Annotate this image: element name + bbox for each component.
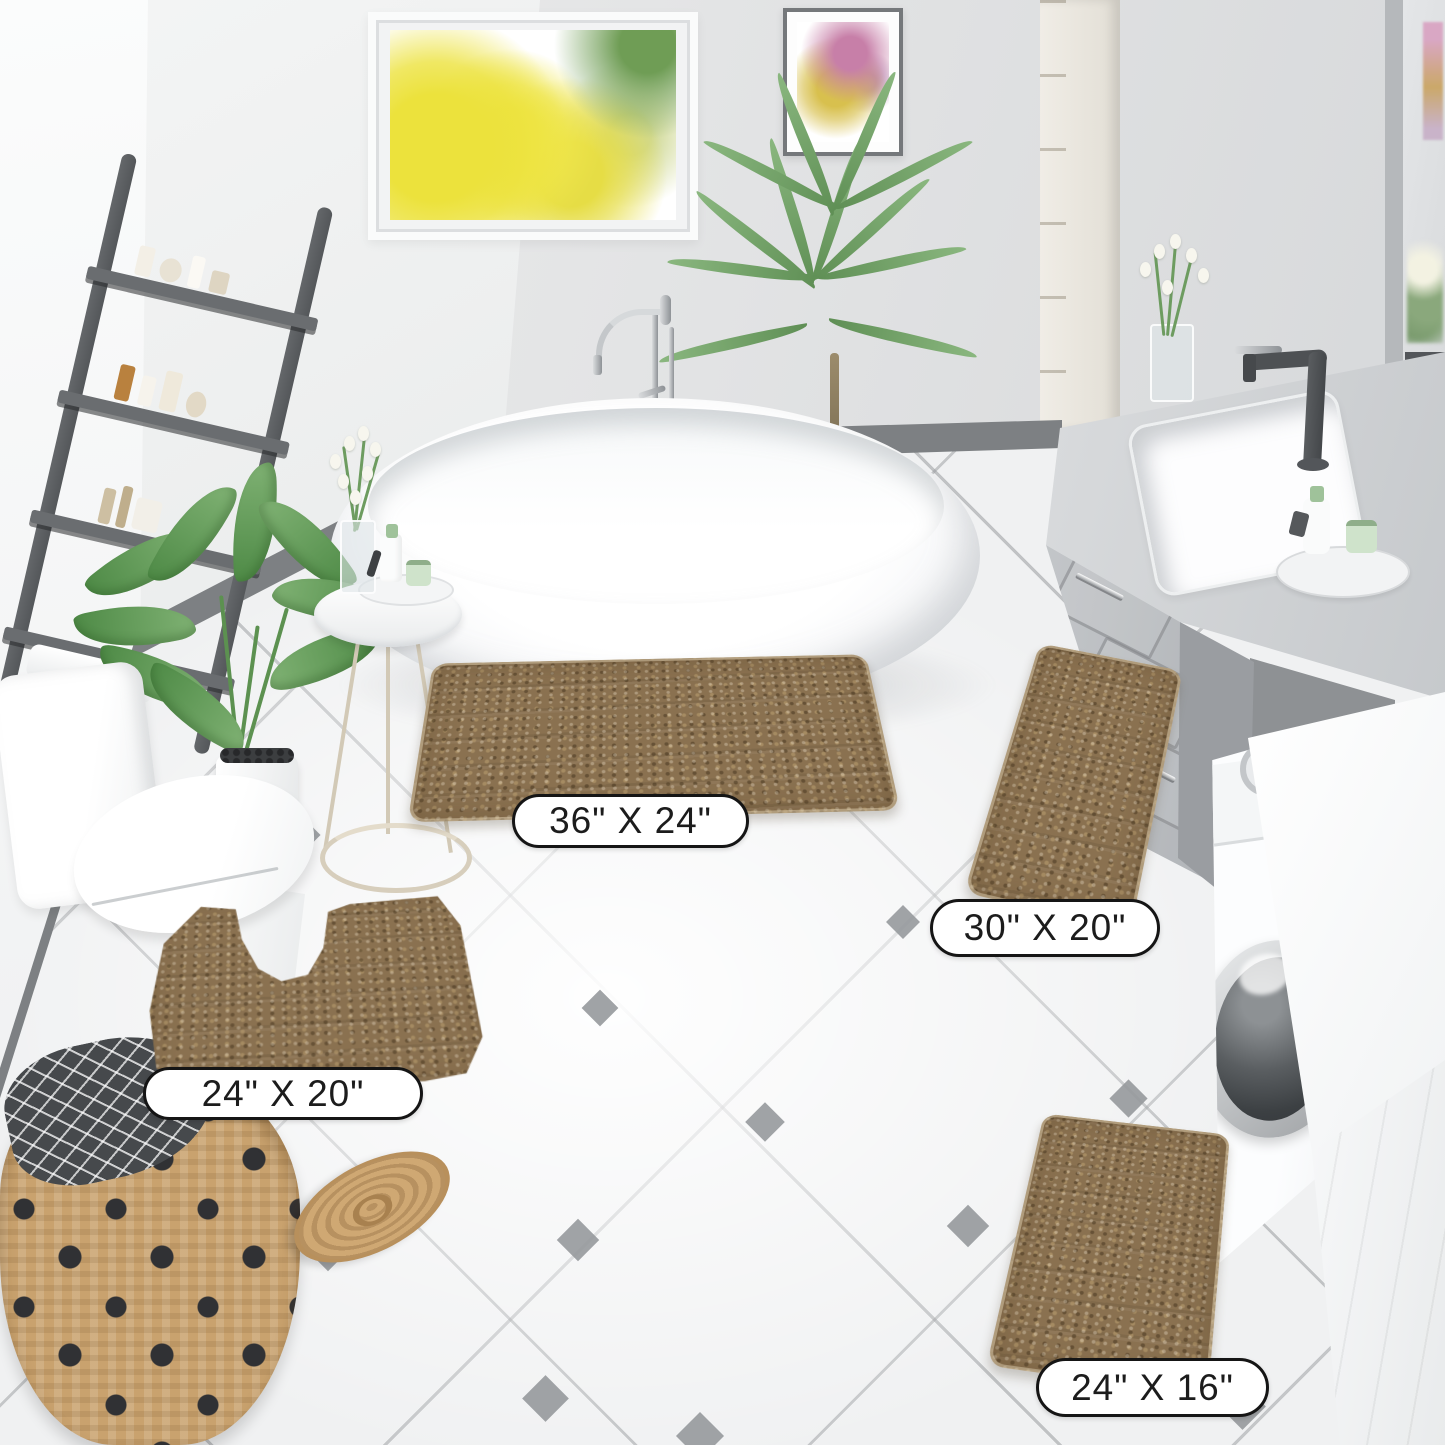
vanity-faucet-spout [1243, 354, 1256, 382]
tile-accent-diamond [582, 990, 619, 1027]
white-flower [338, 474, 349, 489]
vanity-toiletries-tray [1276, 546, 1410, 598]
toiletry-bottle [137, 375, 157, 407]
white-flower [1154, 244, 1165, 259]
white-flower [1186, 248, 1197, 263]
white-flower [1170, 234, 1181, 249]
side-table [300, 428, 480, 893]
tile-accent-diamond [1109, 1079, 1147, 1117]
tile-accent-diamond [886, 905, 920, 939]
size-label-text: 24" X 20" [202, 1073, 365, 1115]
white-flower [1198, 268, 1209, 283]
white-flower [358, 426, 369, 441]
tall-storage-cabinet [1040, 0, 1120, 430]
cream-jar [406, 560, 431, 586]
size-label-text: 30" X 20" [964, 907, 1127, 949]
palm-leaf [827, 318, 979, 358]
vanity-faucet-base [1297, 458, 1329, 471]
size-label-30x20: 30" X 20" [930, 899, 1160, 957]
toiletry-jar [208, 270, 230, 295]
tile-accent-diamond [947, 1205, 989, 1247]
toiletry-jar [157, 256, 184, 284]
table-leg [386, 634, 390, 834]
size-label-24x20: 24" X 20" [143, 1067, 423, 1120]
table-leg [323, 637, 360, 849]
tile-accent-diamond [676, 1412, 724, 1445]
size-label-text: 24" X 16" [1071, 1367, 1234, 1409]
white-flower [362, 466, 373, 481]
mirror-reflection-flowers [1407, 238, 1443, 343]
bathroom-product-scene: 36" X 24" 30" X 20" 24" X 20" 24" X 16" [0, 0, 1445, 1445]
white-flower [1140, 262, 1151, 277]
size-label-text: 36" X 24" [549, 800, 712, 842]
white-flower [330, 454, 341, 469]
faucet-spout-tip [593, 355, 602, 375]
window-tree-view [390, 30, 676, 220]
toiletry-jar [183, 390, 208, 420]
soap-pump [1310, 486, 1324, 502]
toiletry-bottle [186, 255, 206, 289]
toiletry-bottle [134, 245, 156, 278]
white-flower [370, 442, 381, 457]
basket-lid [276, 1129, 467, 1286]
amber-bottle [113, 364, 136, 402]
window [368, 12, 698, 240]
size-label-36x24: 36" X 24" [512, 794, 749, 848]
size-label-24x16: 24" X 16" [1036, 1358, 1269, 1417]
lotion-bottle [380, 534, 402, 582]
cabinet-shelves [1040, 0, 1066, 430]
table-base-ring [320, 823, 472, 893]
tile-accent-diamond [745, 1102, 785, 1142]
hand-shower [660, 295, 671, 325]
tile-accent-diamond [557, 1219, 599, 1261]
cream-jar [1346, 520, 1377, 553]
white-flower [344, 436, 355, 451]
soap-bottle [1303, 498, 1330, 554]
tile-accent-diamond [522, 1375, 569, 1422]
white-flower [350, 490, 361, 505]
mirror-reflection-art [1423, 22, 1443, 140]
pump-bottle [158, 370, 184, 413]
faucet-spout [596, 309, 660, 371]
white-flower [1162, 280, 1173, 295]
lotion-pump [386, 524, 398, 538]
